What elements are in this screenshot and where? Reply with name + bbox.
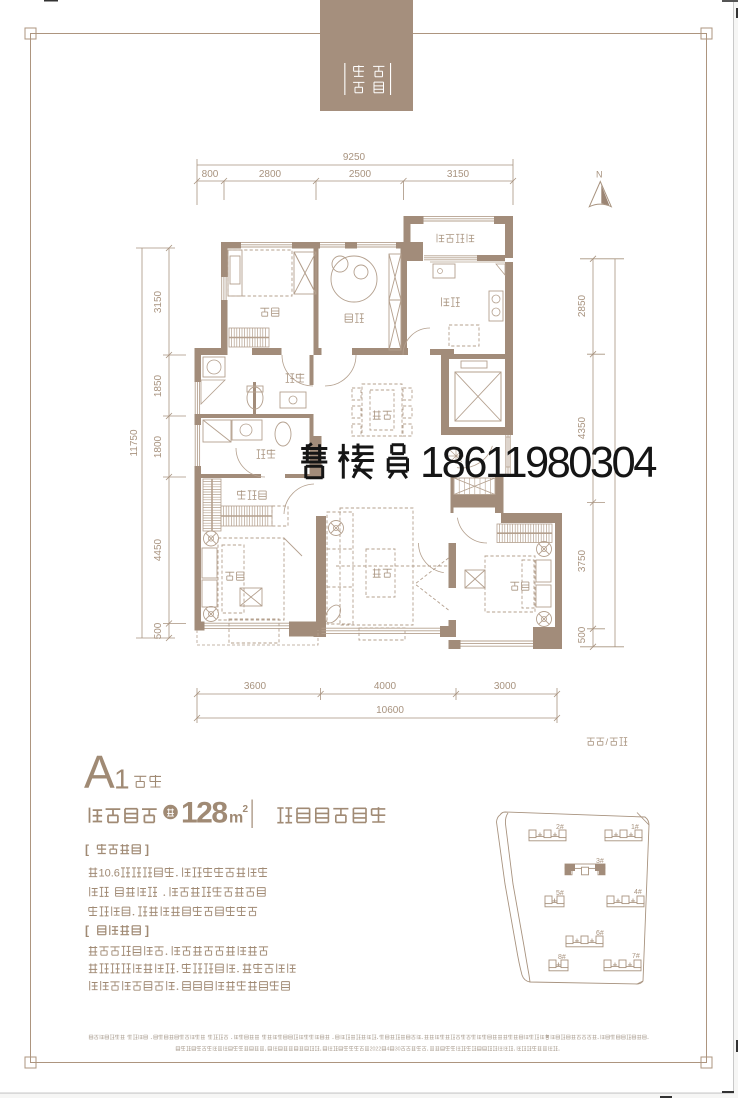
svg-text:1850: 1850 xyxy=(153,374,164,397)
svg-text:]: ] xyxy=(145,843,149,857)
svg-text:3000: 3000 xyxy=(494,681,517,692)
svg-text:2800: 2800 xyxy=(259,169,282,180)
svg-text:30: 30 xyxy=(395,1047,401,1053)
svg-text:500: 500 xyxy=(577,626,588,643)
svg-text:2022: 2022 xyxy=(370,1047,382,1053)
svg-text:800: 800 xyxy=(202,169,219,180)
svg-text:4350: 4350 xyxy=(577,416,588,439)
svg-text:128: 128 xyxy=(181,797,227,830)
svg-text:[: [ xyxy=(85,924,89,938)
svg-text:/: / xyxy=(606,737,609,748)
svg-text:N: N xyxy=(596,170,603,180)
svg-text:18611980304: 18611980304 xyxy=(420,439,656,487)
svg-text:4450: 4450 xyxy=(153,538,164,561)
svg-text:11750: 11750 xyxy=(129,429,140,457)
svg-text:2500: 2500 xyxy=(349,169,372,180)
svg-text:3600: 3600 xyxy=(244,681,267,692)
svg-text:3150: 3150 xyxy=(153,290,164,313)
svg-text:10.6: 10.6 xyxy=(99,868,120,880)
svg-text:A: A xyxy=(84,746,115,798)
svg-text:9250: 9250 xyxy=(343,152,366,163)
svg-text:7#: 7# xyxy=(632,953,640,960)
svg-text:2850: 2850 xyxy=(577,294,588,317)
svg-text:3150: 3150 xyxy=(447,169,470,180)
svg-text:500: 500 xyxy=(153,622,164,639)
svg-text:2: 2 xyxy=(243,804,249,815)
svg-text:3750: 3750 xyxy=(577,549,588,572)
svg-text:4000: 4000 xyxy=(374,681,397,692)
svg-text:]: ] xyxy=(145,924,149,938)
svg-text:m: m xyxy=(229,810,243,827)
svg-text:4#: 4# xyxy=(634,889,642,896)
svg-text:10600: 10600 xyxy=(376,705,404,716)
svg-text:[: [ xyxy=(85,843,89,857)
svg-text:1: 1 xyxy=(114,764,130,795)
svg-text:4: 4 xyxy=(387,1047,390,1053)
svg-text:1800: 1800 xyxy=(153,435,164,458)
